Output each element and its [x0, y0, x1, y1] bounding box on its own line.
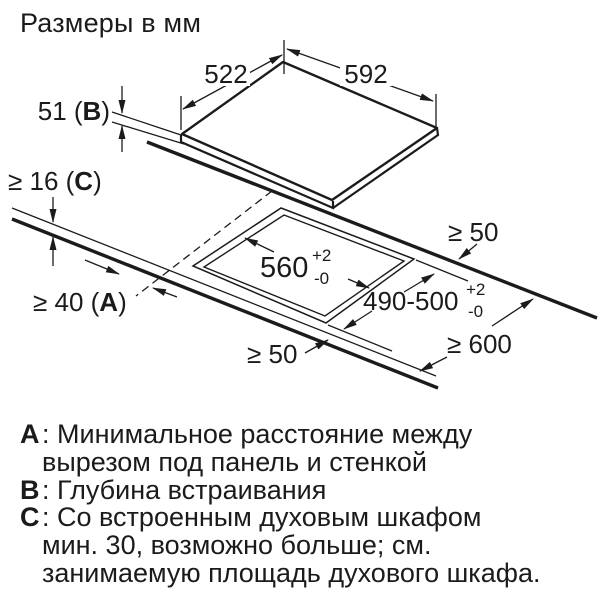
worktop-thickness-dim: ≥ 16 (C): [8, 166, 102, 266]
side-clearance-dim: ≥ 40 (A): [33, 260, 177, 317]
arrow-downleft: [420, 357, 447, 371]
legend-text: : Глубина встраивания: [42, 475, 326, 505]
arrow-downleft: [153, 288, 177, 297]
legend-row-b: B: Глубина встраивания: [20, 477, 590, 505]
arrow-downright: [85, 260, 119, 274]
arrow: [305, 340, 328, 353]
legend-row-c3: занимаемую площадь духового шкафа.: [20, 560, 590, 588]
legend-text: : Минимальное расстояние между: [42, 419, 472, 449]
legend-letter-b: B: [20, 477, 40, 505]
rear-clearance-label: ≥ 50: [448, 217, 498, 247]
embed-depth-dim: 51 (B): [38, 86, 184, 152]
side-clearance-label: ≥ 40 (A): [33, 287, 127, 317]
worktop-depth-label: ≥ 600: [447, 329, 512, 359]
cutout-width-tol-plus: +2: [312, 246, 331, 265]
rear-clearance-dim: ≥ 50: [448, 217, 498, 259]
hob-depth-label: 522: [204, 59, 247, 89]
legend-row-a: A: Минимальное расстояние между: [20, 421, 590, 449]
cutout-width-tol-minus: -0: [314, 269, 329, 288]
legend: A: Минимальное расстояние между вырезом …: [20, 421, 590, 588]
legend-row-a2: вырезом под панель и стенкой: [20, 449, 590, 477]
legend-letter-c: C: [20, 504, 40, 532]
legend-row-c: C: Со встроенным духовым шкафом: [20, 504, 590, 532]
hob-width-label: 592: [344, 59, 387, 89]
cutout-depth-tol-plus: +2: [466, 280, 485, 299]
legend-text: вырезом под панель и стенкой: [42, 447, 427, 477]
front-clearance-label: ≥ 50: [247, 339, 297, 369]
arrow-upright: [492, 299, 533, 326]
legend-row-c2: мин. 30, возможно больше; см.: [20, 532, 590, 560]
front-clearance-dim: ≥ 50: [247, 339, 328, 369]
cutout-depth-label: 490-500: [363, 286, 458, 316]
legend-text: мин. 30, возможно больше; см.: [42, 530, 431, 560]
legend-letter-a: A: [20, 421, 40, 449]
worktop-thickness-label: ≥ 16 (C): [8, 166, 102, 196]
embed-depth-label: 51 (B): [38, 96, 110, 126]
legend-text: : Со встроенным духовым шкафом: [42, 502, 481, 532]
cutout-width-label: 560: [260, 252, 308, 284]
cutout-depth-tol-minus: -0: [468, 302, 483, 321]
legend-text: занимаемую площадь духового шкафа.: [42, 558, 540, 588]
